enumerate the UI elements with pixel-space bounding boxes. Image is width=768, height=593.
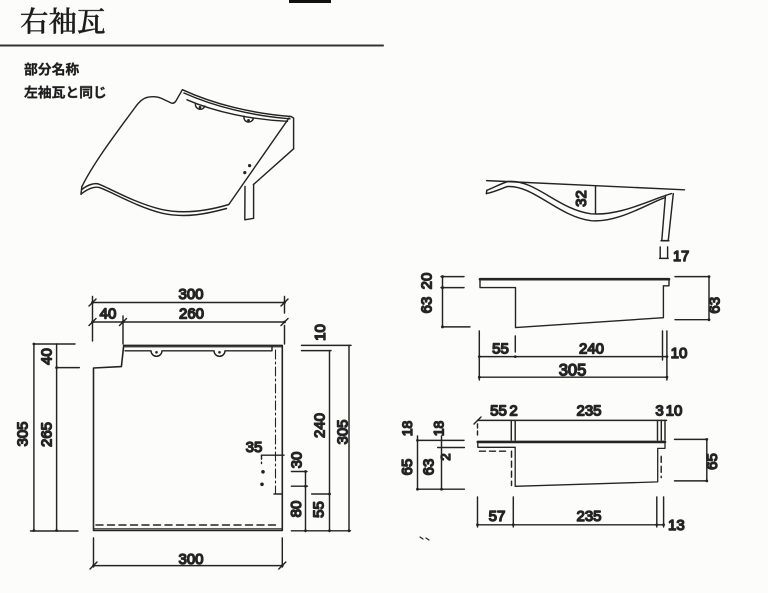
svg-text:40: 40 — [100, 306, 117, 323]
svg-text:300: 300 — [178, 286, 203, 303]
svg-text:32: 32 — [573, 190, 590, 207]
svg-text:40: 40 — [39, 348, 56, 365]
svg-text:305: 305 — [559, 362, 587, 380]
svg-text:2: 2 — [438, 453, 453, 460]
svg-text:10: 10 — [312, 324, 329, 341]
svg-text:2: 2 — [509, 403, 517, 420]
svg-text:35: 35 — [246, 439, 263, 456]
svg-text:240: 240 — [579, 341, 604, 358]
svg-text:80: 80 — [288, 501, 305, 518]
svg-text:300: 300 — [178, 551, 203, 568]
svg-text:65: 65 — [399, 459, 416, 476]
svg-text:10: 10 — [671, 345, 688, 362]
svg-text:18: 18 — [431, 421, 447, 437]
svg-text:235: 235 — [576, 403, 601, 420]
svg-text:20: 20 — [419, 273, 436, 290]
svg-text:305: 305 — [335, 419, 352, 444]
svg-text:3: 3 — [655, 403, 663, 420]
svg-text:63: 63 — [707, 297, 724, 314]
svg-text:55: 55 — [311, 501, 328, 518]
svg-text:10: 10 — [666, 403, 683, 420]
svg-text:65: 65 — [704, 453, 721, 470]
svg-text:63: 63 — [419, 297, 436, 314]
svg-text:260: 260 — [179, 306, 204, 323]
svg-text:57: 57 — [489, 508, 506, 525]
svg-text:17: 17 — [673, 249, 689, 265]
svg-text:30: 30 — [289, 452, 306, 469]
svg-text:235: 235 — [576, 508, 601, 525]
svg-text:305: 305 — [15, 421, 32, 446]
svg-text:240: 240 — [312, 413, 329, 438]
svg-text:55: 55 — [490, 403, 507, 420]
svg-text:55: 55 — [492, 341, 509, 358]
svg-text:18: 18 — [399, 421, 415, 437]
svg-text:13: 13 — [668, 517, 685, 534]
svg-text:63: 63 — [421, 459, 438, 476]
svg-text:265: 265 — [39, 422, 56, 447]
